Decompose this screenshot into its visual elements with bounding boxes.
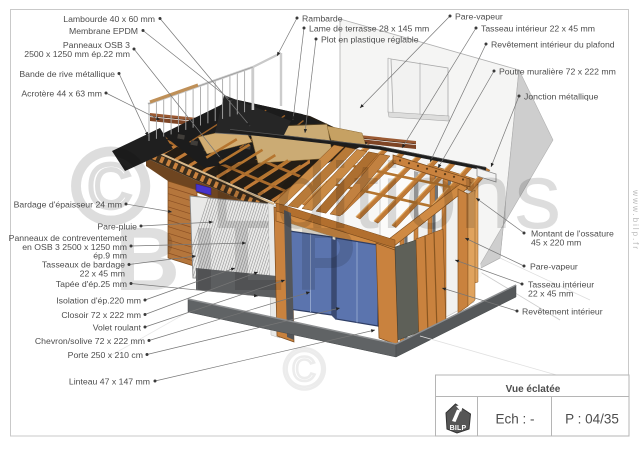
svg-text:Revêtement intérieur: Revêtement intérieur	[522, 307, 603, 317]
svg-text:Bande de rive métallique: Bande de rive métallique	[19, 69, 115, 79]
svg-text:22 x 45 mm: 22 x 45 mm	[528, 288, 573, 298]
svg-text:Pare-vapeur: Pare-vapeur	[530, 262, 578, 272]
svg-text:Closoir 72 x 222 mm: Closoir 72 x 222 mm	[61, 310, 141, 320]
svg-text:Chevron/solive 72 x 222 mm: Chevron/solive 72 x 222 mm	[35, 336, 145, 346]
svg-text:Plot en plastique réglable: Plot en plastique réglable	[321, 35, 419, 45]
svg-text:Tasseau intérieur 22 x 45 mm: Tasseau intérieur 22 x 45 mm	[481, 24, 595, 34]
svg-text:Bardage d'épaisseur 24 mm: Bardage d'épaisseur 24 mm	[14, 200, 122, 210]
svg-text:P : 04/35: P : 04/35	[565, 412, 619, 427]
svg-text:Volet roulant: Volet roulant	[93, 323, 142, 333]
svg-text:Pare-vapeur: Pare-vapeur	[455, 12, 503, 22]
svg-text:Pare-pluie: Pare-pluie	[97, 222, 137, 232]
svg-text:Revêtement intérieur du plafon: Revêtement intérieur du plafond	[491, 40, 615, 50]
svg-text:Lambourde 40 x 60 mm: Lambourde 40 x 60 mm	[63, 14, 155, 24]
svg-text:Linteau 47 x 147 mm: Linteau 47 x 147 mm	[69, 377, 150, 387]
svg-text:45 x 220 mm: 45 x 220 mm	[531, 237, 581, 247]
svg-text:Acrotère 44 x 63 mm: Acrotère 44 x 63 mm	[21, 89, 102, 99]
svg-text:Rambarde: Rambarde	[302, 14, 343, 24]
svg-text:Porte 250 x 210 cm: Porte 250 x 210 cm	[68, 350, 143, 360]
svg-text:www.bilp.fr: www.bilp.fr	[631, 189, 640, 251]
svg-text:Isolation d'ép.220 mm: Isolation d'ép.220 mm	[56, 296, 141, 306]
svg-text:Lame de terrasse 28 x 145 mm: Lame de terrasse 28 x 145 mm	[309, 24, 429, 34]
svg-text:Membrane EPDM: Membrane EPDM	[69, 26, 138, 36]
svg-text:Ech : -: Ech : -	[495, 412, 534, 427]
svg-text:BILP: BILP	[450, 425, 467, 432]
svg-text:22 x 45 mm: 22 x 45 mm	[80, 268, 125, 278]
svg-text:©: ©	[283, 337, 326, 402]
svg-text:Poutre muralière 72 x 222 mm: Poutre muralière 72 x 222 mm	[499, 67, 616, 77]
svg-text:Vue éclatée: Vue éclatée	[506, 384, 561, 395]
svg-text:2500 x 1250 mm ép.22 mm: 2500 x 1250 mm ép.22 mm	[24, 49, 130, 59]
svg-text:Jonction métallique: Jonction métallique	[524, 92, 599, 102]
svg-text:Tapée d'ép.25 mm: Tapée d'ép.25 mm	[56, 279, 127, 289]
